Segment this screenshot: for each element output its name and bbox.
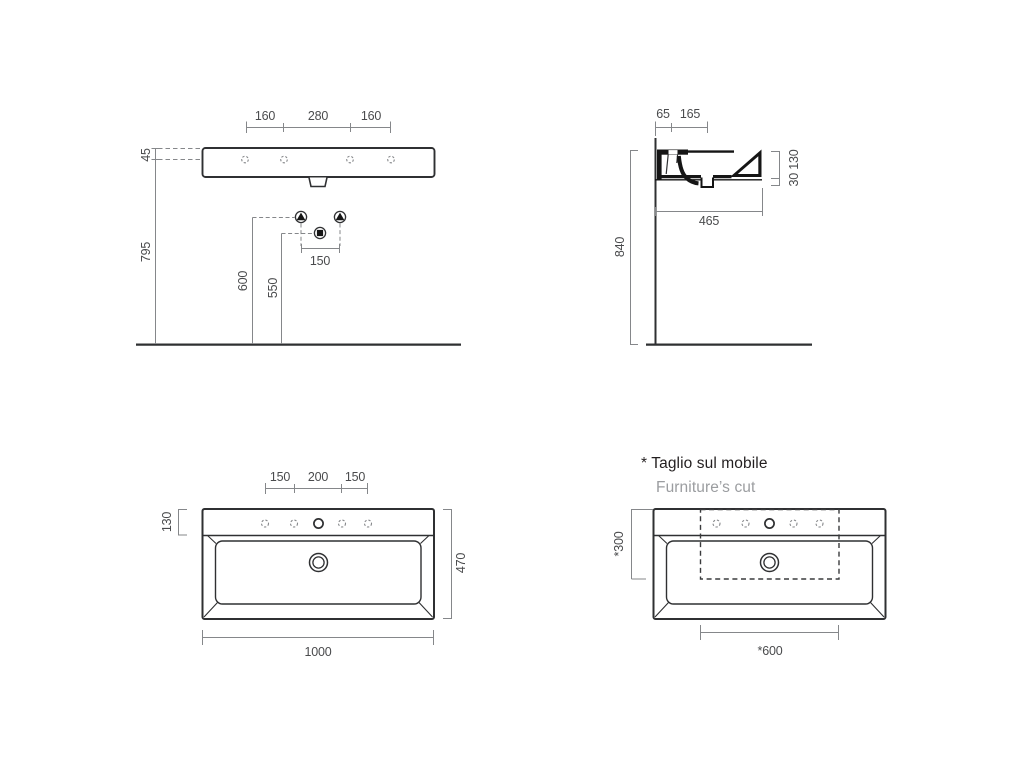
front-dim-795: 795 (139, 242, 153, 262)
furniture-dim-300: *300 (612, 532, 626, 557)
side-840-dimension (630, 150, 638, 345)
plan-outer-rim (203, 509, 435, 619)
side-dim-65: 65 (656, 107, 670, 121)
furniture-600-dimension (701, 625, 840, 640)
furniture-dim-600: *600 (758, 644, 783, 658)
plan-dim-130: 130 (160, 512, 174, 532)
plan-top-dimension (265, 483, 368, 494)
note-taglio-sul-mobile: * Taglio sul mobile (641, 455, 768, 473)
plan-dim-470: 470 (454, 553, 468, 573)
plan-130-bracket (179, 509, 188, 536)
front-dim-160-left: 160 (255, 109, 275, 123)
front-dim-160-right: 160 (361, 109, 381, 123)
side-465-dimension (655, 188, 763, 216)
plan-dim-200: 200 (308, 470, 328, 484)
plan-dim-150-right: 150 (345, 470, 365, 484)
plan-dim-150-left: 150 (270, 470, 290, 484)
furniture-300-bracket (632, 509, 654, 579)
technical-drawing-canvas: 160 280 160 45 795 600 550 150 65 165 84… (0, 0, 1024, 768)
plan-1000-dimension (203, 630, 435, 645)
side-dim-165: 165 (680, 107, 700, 121)
front-basin-outline (203, 148, 435, 177)
top-view (179, 483, 452, 645)
side-30-130-bracket (771, 151, 780, 186)
front-drain-stub (309, 178, 327, 187)
front-dim-45: 45 (139, 148, 153, 162)
front-dim-150: 150 (310, 254, 330, 268)
side-section-profile (655, 150, 762, 188)
furniture-cut-view (632, 509, 886, 640)
front-reference-dashes (253, 218, 341, 247)
plan-dim-1000: 1000 (304, 645, 331, 659)
front-150-bracket (301, 244, 340, 253)
front-fixing-markers (295, 211, 345, 238)
side-dim-840: 840 (613, 237, 627, 257)
side-dim-30-130: 30 130 (787, 149, 801, 186)
front-view (136, 122, 461, 345)
front-top-dimension (246, 122, 391, 134)
front-dim-550: 550 (266, 278, 280, 298)
front-dim-280: 280 (308, 109, 328, 123)
sink-dimension-linework (0, 0, 1024, 768)
side-top-dimension (655, 122, 708, 137)
furniture-outer-rim (654, 509, 886, 619)
front-dim-600: 600 (236, 271, 250, 291)
side-dim-465: 465 (699, 214, 719, 228)
plan-470-bracket (443, 509, 452, 619)
note-furnitures-cut: Furniture’s cut (656, 479, 755, 497)
side-view (630, 122, 812, 345)
